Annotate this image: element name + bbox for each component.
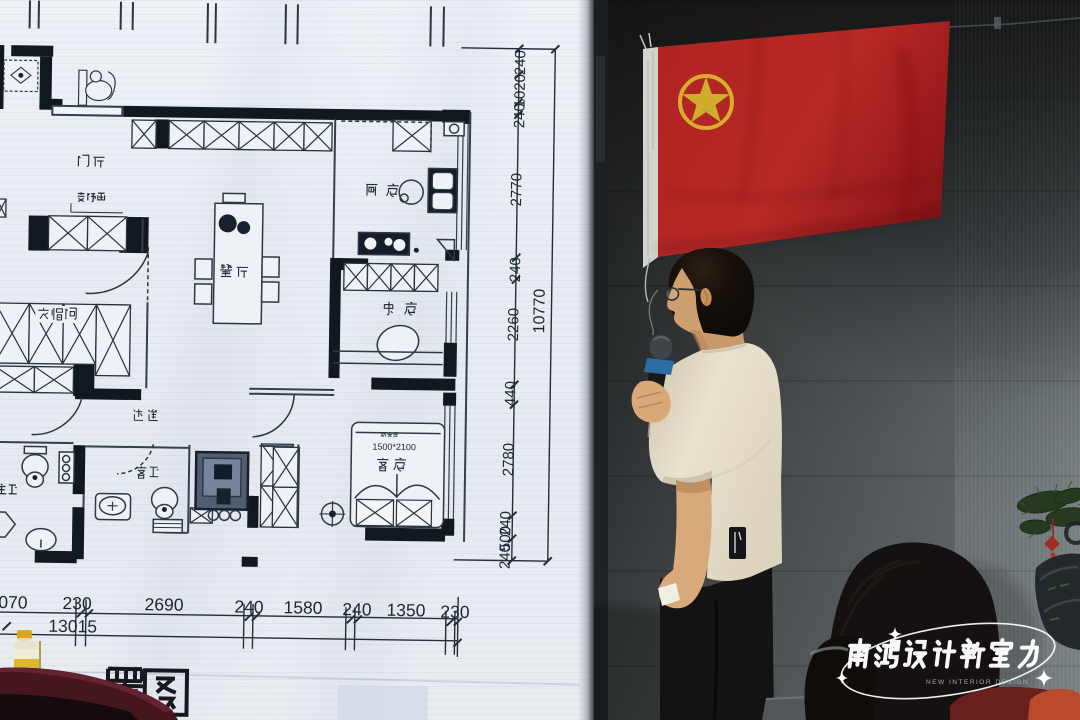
- svg-text:NEW INTERIOR DESIGN: NEW INTERIOR DESIGN: [926, 679, 1029, 686]
